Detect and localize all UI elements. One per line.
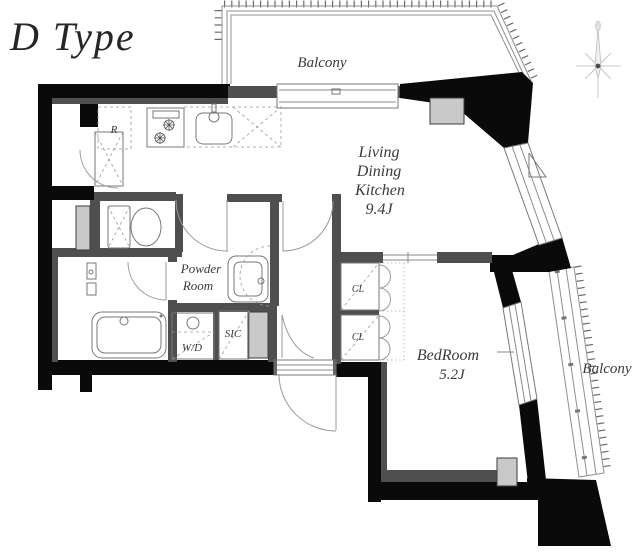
bathtub-faucet: [120, 317, 128, 325]
pillar-topright: [430, 98, 464, 124]
wall-corridor-left: [270, 196, 279, 306]
bathtub: [92, 312, 166, 358]
bedroom-window: [503, 302, 537, 405]
floor-plan-svg: Balcony Balcony: [0, 0, 640, 553]
exterior-walls: [38, 72, 611, 546]
liner-top: [52, 98, 228, 104]
bedroom-sliding-door: [383, 252, 437, 263]
ldk-label-line2: Dining: [356, 163, 401, 180]
kitchen-sink: [196, 104, 232, 144]
entrance-sill-cap-right: [333, 360, 336, 375]
balcony-top: Balcony: [218, 4, 535, 84]
compass-needle: [595, 28, 601, 78]
wall-closet-divider: [337, 310, 379, 315]
shoe-closet-label: SIC: [225, 328, 242, 340]
hall-shaft-door: [80, 132, 123, 188]
ldk-balcony-window: [277, 84, 398, 108]
powder-room: [228, 246, 270, 306]
wall-corridor-right: [332, 194, 341, 364]
wall-shaft: [90, 200, 100, 252]
hall-door-arc: [80, 150, 118, 188]
entrance-sill: [274, 360, 336, 375]
page-title: D Type: [9, 14, 136, 59]
washbasin-tap: [258, 278, 264, 284]
wall-top: [38, 84, 230, 98]
ldk-label-line1: Living: [358, 144, 400, 161]
balcony-right-label: Balcony: [582, 361, 631, 377]
wall-bedroom-top-east: [437, 252, 492, 263]
bathtub-inner: [97, 317, 161, 353]
counter-cross2: [233, 107, 281, 147]
sink-basin: [196, 113, 232, 144]
wall-left-foot: [80, 375, 92, 392]
burner-1-flame: [163, 119, 175, 131]
bathroom: [87, 263, 166, 358]
powder-label-line2: Room: [182, 278, 213, 293]
closet-upper-doors: [379, 265, 391, 311]
closet-upper-label: CL: [352, 284, 365, 295]
compass-top-bead: [596, 21, 601, 31]
wall-sic-right: [268, 306, 277, 362]
wall-topright-wedge: [400, 72, 533, 148]
fridge-label: R: [110, 124, 118, 136]
wall-bedroom-left: [368, 362, 381, 502]
wall-bedroom-right-upper: [494, 270, 521, 308]
closet-lower-label: CL: [352, 332, 365, 343]
wall-bedroom-right-lower: [519, 399, 546, 483]
balcony-top-hatch-right: [501, 4, 535, 79]
entrance-sill-cap-left: [274, 360, 277, 375]
toilet-room: [108, 206, 161, 248]
bathtub-outer: [92, 312, 166, 358]
corridor-door-arc: [283, 201, 333, 251]
wall-bottomright-wedge: [527, 478, 611, 546]
washer-drum: [187, 317, 199, 329]
liner-bedroom-left: [381, 362, 387, 472]
wall-bottom-west: [48, 360, 276, 375]
shower-panel-top: [87, 263, 96, 279]
interior-walls: [52, 98, 517, 482]
closet-lower-doors: [379, 316, 390, 360]
shower-knob: [89, 270, 93, 274]
wall-toilet-top: [94, 192, 176, 201]
entrance-sill-body: [274, 360, 336, 375]
washer-dryer-label: W/D: [182, 342, 202, 354]
balcony-top-rail-outer: [222, 6, 531, 84]
wall-bedroom-top-west: [337, 252, 383, 263]
ldk-label-size: 9.4J: [365, 201, 393, 218]
wall-right-elbow: [490, 237, 571, 272]
bedroom-label: BedRoom: [417, 347, 479, 364]
stove-grill: [153, 111, 179, 118]
balcony-top-rail-inner: [231, 15, 524, 84]
bath-door-arc: [128, 262, 166, 300]
pillar-bottomright: [497, 458, 517, 486]
ldk-label-line3: Kitchen: [354, 182, 405, 199]
wall-jog-toilet: [50, 186, 94, 200]
floor-plan-page: Balcony Balcony: [0, 0, 640, 553]
bedroom-size-label: 5.2J: [439, 367, 466, 383]
balcony-top-label: Balcony: [297, 55, 346, 71]
liner-bath-left: [52, 252, 58, 362]
stove-burners: [154, 119, 175, 144]
kitchen: [80, 104, 281, 188]
wall-bath-right-stub-top: [168, 252, 177, 262]
powder-door-arc: [176, 200, 227, 251]
sink-tap-stem: [212, 104, 216, 112]
toilet-bowl: [131, 208, 161, 246]
compass-center-dot: [596, 64, 601, 69]
balcony-right: Balcony: [549, 266, 632, 477]
wall-left: [38, 84, 52, 390]
burner-2-flame: [154, 132, 166, 144]
shaft-door-x2: [95, 132, 123, 186]
washbasin-door-arc: [240, 246, 270, 306]
washbasin-inner: [234, 262, 262, 296]
wall-toilet-bottom: [52, 248, 182, 257]
entrance-door-arc: [279, 374, 336, 431]
genkan-door-arc: [282, 315, 314, 358]
powder-label-line1: Powder: [180, 261, 222, 276]
balcony-top-rail-mid: [227, 11, 527, 84]
shaft-toilet: [76, 206, 90, 250]
toilet: [108, 206, 161, 248]
compass-icon: [576, 21, 621, 98]
bathtub-drain: [160, 315, 163, 318]
shower-panel-bottom: [87, 283, 96, 295]
shower-fixture: [87, 263, 96, 295]
genkan-panel: [248, 312, 268, 358]
washbasin: [228, 246, 270, 306]
